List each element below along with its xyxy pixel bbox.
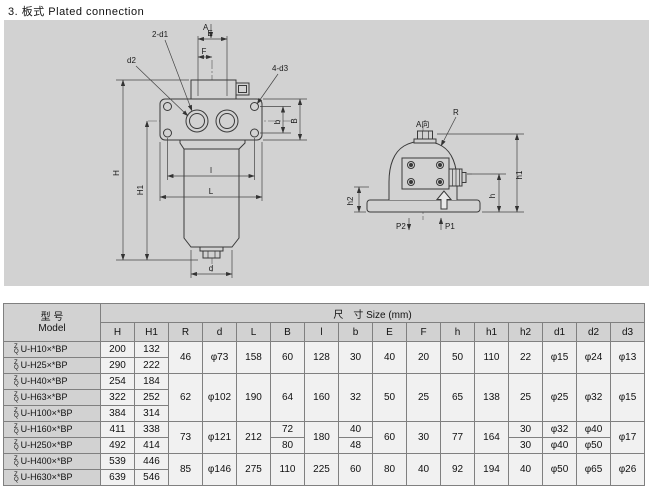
table-cell: 30 <box>407 422 441 454</box>
dim-L-label: L <box>209 187 214 196</box>
dim-d-label: d <box>209 264 213 273</box>
table-cell: 77 <box>441 422 475 454</box>
model-header-en: Model <box>4 323 100 334</box>
col-header: H <box>101 323 135 342</box>
model-label: U-H100×*BP <box>21 408 73 418</box>
port-P2-label: P2 <box>396 222 406 231</box>
table-cell: 184 <box>135 374 169 390</box>
note-gauge-label: d2 <box>127 56 136 65</box>
model-prefix-bottom: Q <box>14 478 19 483</box>
model-prefix-bottom: Q <box>14 446 19 451</box>
table-cell: 314 <box>135 406 169 422</box>
model-prefix: ZQ <box>14 393 19 403</box>
col-header: h1 <box>475 323 509 342</box>
model-prefix-bottom: Q <box>14 414 19 419</box>
table-cell: φ13 <box>611 342 645 374</box>
table-cell: 40 <box>373 342 407 374</box>
table-cell: 132 <box>135 342 169 358</box>
dim-H-label: H <box>112 170 121 176</box>
indicator-port <box>236 83 249 95</box>
table-cell: 164 <box>475 422 509 454</box>
dim-b-label: b <box>273 119 282 124</box>
table-cell: 72 <box>271 422 305 438</box>
table-cell: φ73 <box>203 342 237 374</box>
model-column-header: 型 号 Model <box>4 304 101 342</box>
table-cell: 30 <box>339 342 373 374</box>
model-label: U-H40×*BP <box>21 376 68 386</box>
col-header: B <box>271 323 305 342</box>
table-cell: 384 <box>101 406 135 422</box>
drawing-panel-background <box>4 20 649 286</box>
model-header-cn: 型 号 <box>4 312 100 323</box>
dim-R-label: R <box>453 108 459 117</box>
table-cell: 546 <box>135 470 169 486</box>
col-header: L <box>237 323 271 342</box>
model-prefix: ZQ <box>14 361 19 371</box>
size-table: 型 号 Model 尺 寸 Size (mm) H H1 R d L B l b… <box>3 303 645 486</box>
model-prefix-bottom: Q <box>14 366 19 371</box>
table-cell: φ17 <box>611 422 645 454</box>
port-P1-label: P1 <box>445 222 455 231</box>
size-header: 尺 寸 Size (mm) <box>101 304 645 323</box>
mount-hole <box>164 129 172 137</box>
model-label: U-H25×*BP <box>21 360 68 370</box>
table-cell: 46 <box>169 342 203 374</box>
table-cell: 180 <box>305 422 339 454</box>
table-cell: 30 <box>509 438 543 454</box>
model-prefix: ZQ <box>14 409 19 419</box>
table-cell: φ50 <box>577 438 611 454</box>
model-cell: ZQU-H100×*BP <box>4 406 101 422</box>
model-label: U-H160×*BP <box>21 424 73 434</box>
table-cell: 48 <box>339 438 373 454</box>
drain-plug <box>203 251 220 258</box>
table-cell: φ32 <box>543 422 577 438</box>
table-cell: φ102 <box>203 374 237 422</box>
filter-head <box>160 99 262 140</box>
table-cell: 190 <box>237 374 271 422</box>
table-cell: 138 <box>475 374 509 422</box>
model-prefix-bottom: Q <box>14 462 19 467</box>
table-cell: 446 <box>135 454 169 470</box>
cap-flange <box>414 139 436 143</box>
table-cell: φ121 <box>203 422 237 454</box>
model-label: U-H10×*BP <box>21 344 68 354</box>
model-label: U-H63×*BP <box>21 392 68 402</box>
model-cell: ZQU-H40×*BP <box>4 374 101 390</box>
table-cell: φ32 <box>577 374 611 422</box>
model-prefix: ZQ <box>14 457 19 467</box>
col-header: d <box>203 323 237 342</box>
table-cell: 322 <box>101 390 135 406</box>
model-cell: ZQU-H63×*BP <box>4 390 101 406</box>
model-prefix: ZQ <box>14 377 19 387</box>
table-cell: 110 <box>475 342 509 374</box>
table-cell: 212 <box>237 422 271 454</box>
table-row: ZQU-H40×*BP 254 184 62 φ102 190 64 160 3… <box>4 374 645 390</box>
table-cell: 25 <box>509 374 543 422</box>
mount-hole <box>251 129 259 137</box>
table-cell: φ25 <box>543 374 577 422</box>
table-row: ZQU-H400×*BP 539 446 85 φ146 275 110 225… <box>4 454 645 470</box>
table-cell: 492 <box>101 438 135 454</box>
size-table-wrapper: 型 号 Model 尺 寸 Size (mm) H H1 R d L B l b… <box>0 303 649 486</box>
col-header: d1 <box>543 323 577 342</box>
side-fitting-tip <box>462 173 466 183</box>
view-A-label: A向 <box>416 119 429 129</box>
dim-E-label: E <box>207 29 212 38</box>
page-title: 3. 板式 Plated connection <box>0 0 649 20</box>
mount-base <box>367 200 480 212</box>
model-prefix: ZQ <box>14 425 19 435</box>
col-header: d3 <box>611 323 645 342</box>
table-cell: 80 <box>271 438 305 454</box>
model-prefix-bottom: Q <box>14 382 19 387</box>
dim-h2-label: h2 <box>346 196 355 205</box>
table-cell: 25 <box>407 374 441 422</box>
table-cell: 411 <box>101 422 135 438</box>
table-cell: 128 <box>305 342 339 374</box>
note-holes-label: 4-d3 <box>272 64 289 73</box>
table-cell: 73 <box>169 422 203 454</box>
dim-B-label: B <box>290 118 299 123</box>
col-header: H1 <box>135 323 169 342</box>
model-prefix-bottom: Q <box>14 350 19 355</box>
model-prefix-bottom: Q <box>14 398 19 403</box>
model-prefix: ZQ <box>14 441 19 451</box>
model-label: U-H250×*BP <box>21 440 73 450</box>
table-cell: 254 <box>101 374 135 390</box>
col-header: d2 <box>577 323 611 342</box>
table-cell: 50 <box>441 342 475 374</box>
table-cell: 64 <box>271 374 305 422</box>
technical-drawing: A E F 2-d1 d2 4-d3 b B H H1 l L d <box>0 20 649 292</box>
table-cell: φ40 <box>577 422 611 438</box>
note-ports-label: 2-d1 <box>152 30 169 39</box>
table-cell: 160 <box>305 374 339 422</box>
table-cell: 222 <box>135 358 169 374</box>
filter-bowl <box>184 149 239 247</box>
model-label: U-H400×*BP <box>21 456 73 466</box>
col-header: F <box>407 323 441 342</box>
model-prefix: ZQ <box>14 473 19 483</box>
model-prefix-bottom: Q <box>14 430 19 435</box>
table-cell: 65 <box>441 374 475 422</box>
table-cell: φ15 <box>543 342 577 374</box>
col-header: E <box>373 323 407 342</box>
table-cell: 62 <box>169 374 203 422</box>
table-cell: 338 <box>135 422 169 438</box>
mount-hole <box>164 103 172 111</box>
table-cell: 40 <box>339 422 373 438</box>
model-cell: ZQU-H10×*BP <box>4 342 101 358</box>
col-header: h2 <box>509 323 543 342</box>
model-cell: ZQU-H630×*BP <box>4 470 101 486</box>
table-cell: 30 <box>509 422 543 438</box>
dim-h1-label: h1 <box>515 170 524 179</box>
model-cell: ZQU-H25×*BP <box>4 358 101 374</box>
port-right-bore <box>220 114 235 129</box>
table-cell: φ24 <box>577 342 611 374</box>
model-cell: ZQU-H400×*BP <box>4 454 101 470</box>
col-header: R <box>169 323 203 342</box>
bowl-shoulder <box>180 140 245 149</box>
dim-H1-label: H1 <box>136 184 145 195</box>
cap-hex <box>418 131 433 139</box>
col-header: l <box>305 323 339 342</box>
table-cell: 539 <box>101 454 135 470</box>
table-cell: 60 <box>271 342 305 374</box>
side-fitting <box>449 169 462 186</box>
col-header: b <box>339 323 373 342</box>
table-cell: 290 <box>101 358 135 374</box>
table-cell: 158 <box>237 342 271 374</box>
port-left-bore <box>190 114 205 129</box>
model-cell: ZQU-H160×*BP <box>4 422 101 438</box>
table-cell: φ15 <box>611 374 645 422</box>
dim-l-label: l <box>210 166 212 175</box>
drain-flange <box>200 247 223 251</box>
col-header: h <box>441 323 475 342</box>
table-row: ZQU-H160×*BP 411 338 73 φ121 212 72 180 … <box>4 422 645 438</box>
dim-F-label: F <box>202 47 207 56</box>
table-row: ZQU-H10×*BP 200 132 46 φ73 158 60 128 30… <box>4 342 645 358</box>
table-cell: 414 <box>135 438 169 454</box>
table-cell: 32 <box>339 374 373 422</box>
table-cell: 200 <box>101 342 135 358</box>
table-cell: 20 <box>407 342 441 374</box>
table-cell: 60 <box>373 422 407 454</box>
table-cell: φ40 <box>543 438 577 454</box>
table-cell: 252 <box>135 390 169 406</box>
dim-h-label: h <box>488 194 497 198</box>
table-cell: 639 <box>101 470 135 486</box>
table-cell: 50 <box>373 374 407 422</box>
model-cell: ZQU-H250×*BP <box>4 438 101 454</box>
column-header-row: H H1 R d L B l b E F h h1 h2 d1 d2 d3 <box>4 323 645 342</box>
table-cell: 22 <box>509 342 543 374</box>
model-prefix: ZQ <box>14 345 19 355</box>
